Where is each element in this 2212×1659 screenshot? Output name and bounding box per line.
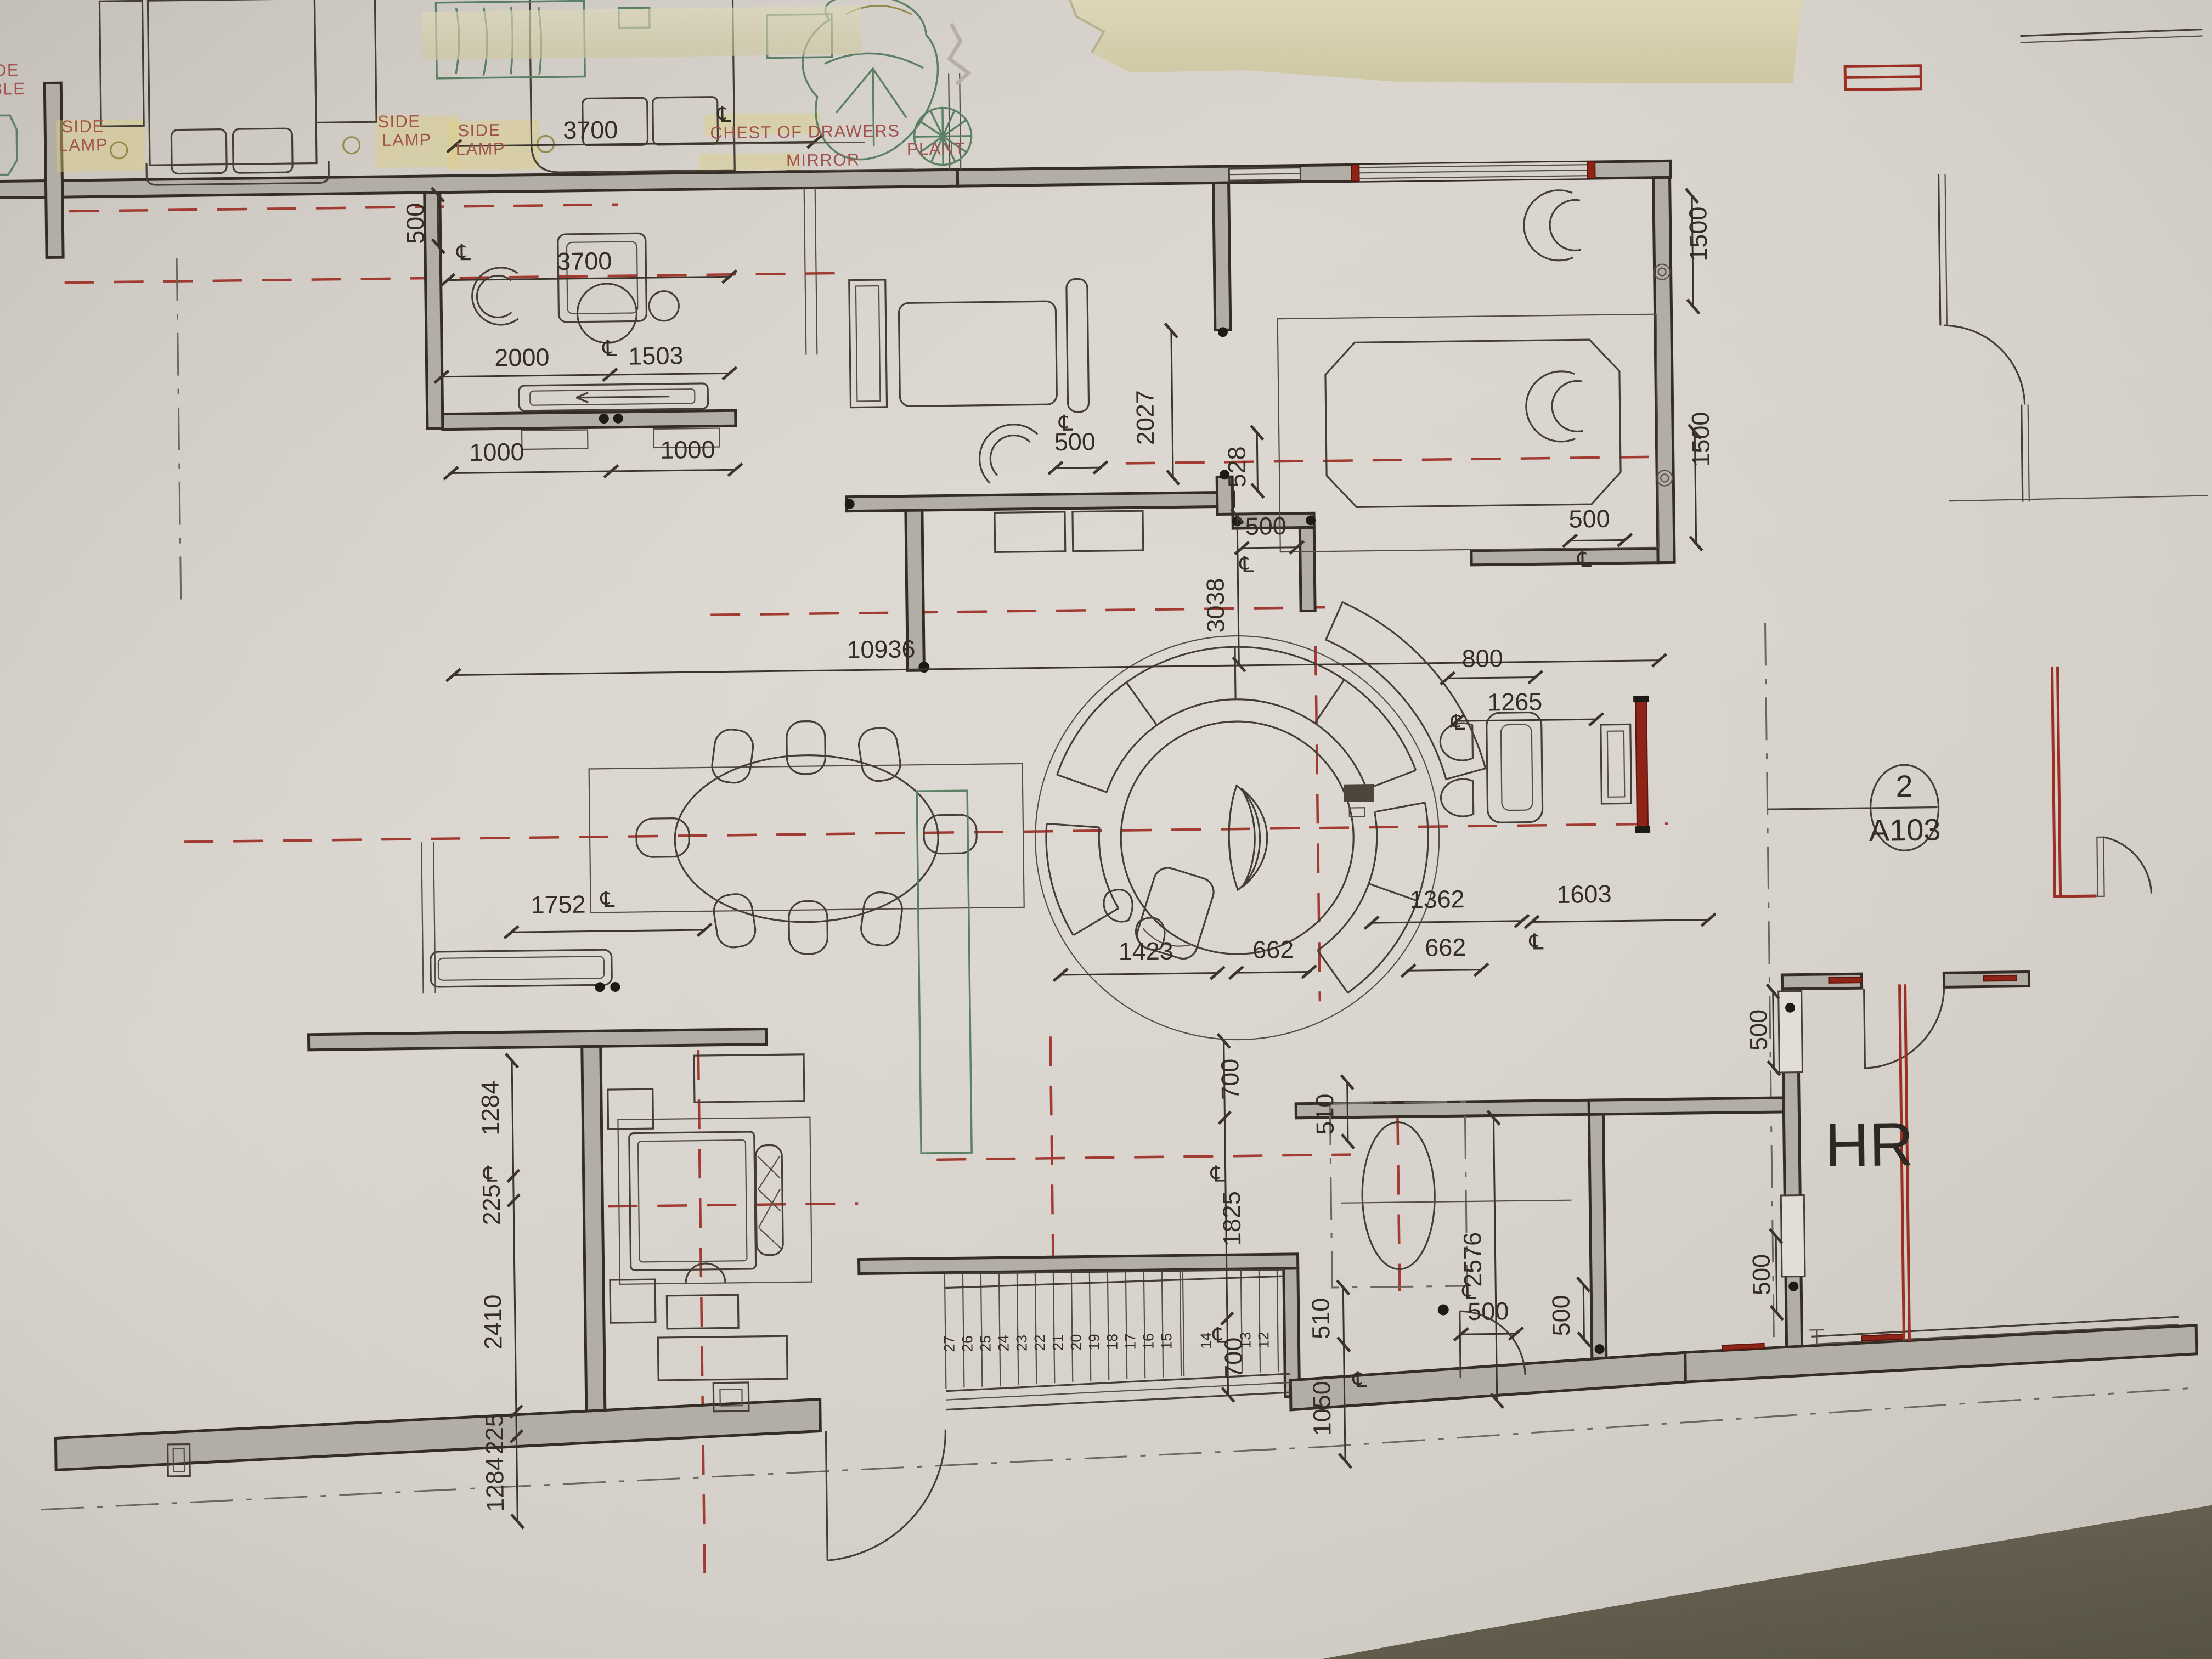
centerline-symbol: ℄ bbox=[456, 240, 471, 266]
dimension-label: 662 bbox=[1252, 935, 1294, 964]
furniture-label: SIDE bbox=[61, 116, 105, 136]
furniture-label: LAMP bbox=[456, 139, 506, 159]
dimension-label: 500 bbox=[1568, 505, 1610, 533]
stair-number: 25 bbox=[977, 1335, 994, 1352]
furniture-label: LAMP bbox=[58, 135, 108, 155]
floorplan-svg: 3700370020001503100010005005002027528500… bbox=[0, 0, 2212, 1659]
dimension-label: 2027 bbox=[1131, 390, 1159, 445]
dimension-label: 500 bbox=[1547, 1295, 1575, 1336]
dimension-label: 225 bbox=[477, 1184, 506, 1226]
dimension-label: 1825 bbox=[1217, 1191, 1246, 1246]
centerline-symbol: ℄ bbox=[716, 102, 732, 127]
dimension-label: 510 bbox=[1311, 1093, 1339, 1135]
centerline-symbol: ℄ bbox=[1451, 710, 1466, 735]
stair-number: 12 bbox=[1255, 1331, 1272, 1348]
dimension-label: 528 bbox=[1222, 446, 1251, 488]
stair-number: 17 bbox=[1122, 1333, 1138, 1350]
centerline-symbol: ℄ bbox=[1210, 1161, 1226, 1187]
floorplan-photo: 3700370020001503100010005005002027528500… bbox=[0, 0, 2212, 1659]
callout-text: A103 bbox=[1869, 812, 1941, 848]
furniture-label: MIRROR bbox=[786, 150, 860, 170]
furniture-label: SIDE bbox=[377, 111, 421, 131]
furniture-label: PLANT bbox=[907, 139, 966, 159]
centerline-symbol: ℄ bbox=[602, 336, 617, 362]
centerline-symbol: ℄ bbox=[1212, 1323, 1227, 1348]
stair-number: 15 bbox=[1158, 1333, 1175, 1350]
red-wall-element bbox=[1635, 700, 1648, 827]
dimension-label: 1500 bbox=[1684, 206, 1712, 262]
stair-number: 24 bbox=[995, 1335, 1012, 1351]
furniture-label: DE bbox=[0, 60, 19, 80]
stair-number: 19 bbox=[1086, 1334, 1102, 1350]
stair-number: 23 bbox=[1013, 1335, 1030, 1351]
dimension-label: 500 bbox=[1744, 1009, 1773, 1051]
dimension-label: 662 bbox=[1425, 933, 1466, 962]
dimension-label: 1050 bbox=[1307, 1381, 1336, 1436]
stair-number: 20 bbox=[1068, 1334, 1084, 1351]
stair-number: 26 bbox=[959, 1335, 975, 1352]
dimension-label: 1284 bbox=[476, 1080, 505, 1136]
dimension-label: 1423 bbox=[1118, 937, 1173, 966]
dimension-label: 1000 bbox=[660, 436, 715, 464]
centerline-symbol: ℄ bbox=[1352, 1367, 1367, 1392]
dimension-label: 500 bbox=[401, 202, 430, 244]
centerline-symbol: ℄ bbox=[600, 887, 615, 912]
centerline-symbol: ℄ bbox=[1528, 929, 1544, 955]
centerline-symbol: ℄ bbox=[1239, 552, 1254, 578]
dimension-label: 10936 bbox=[847, 635, 916, 664]
stair-number: 16 bbox=[1140, 1333, 1156, 1350]
masking-tape-left bbox=[422, 5, 861, 60]
dimension-label: 1284 bbox=[481, 1457, 509, 1512]
centerline-symbol: ℄ bbox=[482, 1162, 498, 1187]
tv-icon bbox=[1344, 784, 1374, 802]
masking-tape-right bbox=[1069, 0, 1802, 83]
dimension-label: 1503 bbox=[628, 341, 684, 370]
dimension-label: 225 bbox=[480, 1413, 509, 1455]
centerline-symbol: ℄ bbox=[1462, 1279, 1477, 1305]
dimension-label: 1000 bbox=[469, 438, 524, 466]
dimension-label: 1362 bbox=[1409, 885, 1465, 913]
dimension-label: 1500 bbox=[1686, 411, 1715, 467]
window-red-mark bbox=[1351, 165, 1359, 181]
furniture-label: CHEST OF DRAWERS bbox=[710, 121, 900, 142]
centerline-symbol: ℄ bbox=[1058, 411, 1074, 436]
dimension-label: 3700 bbox=[563, 116, 618, 144]
dimension-label: 1603 bbox=[1556, 880, 1612, 909]
dimension-label: 500 bbox=[1245, 512, 1286, 540]
room-label: HR bbox=[1824, 1110, 1914, 1180]
dimension-label: 3700 bbox=[557, 247, 612, 275]
furniture-label: BLE bbox=[0, 79, 26, 99]
dimension-label: 510 bbox=[1306, 1297, 1335, 1339]
stair-number: 22 bbox=[1031, 1334, 1048, 1351]
callout-text: 2 bbox=[1895, 769, 1913, 803]
dimension-label: 1265 bbox=[1487, 687, 1543, 716]
furniture-label: SIDE bbox=[458, 120, 501, 140]
stair-number: 13 bbox=[1237, 1332, 1254, 1348]
furniture-label: LAMP bbox=[382, 130, 432, 150]
stair-number: 21 bbox=[1049, 1334, 1066, 1351]
dimension-label: 1752 bbox=[531, 890, 586, 919]
dimension-label: 3038 bbox=[1201, 578, 1229, 633]
stair-number: 14 bbox=[1198, 1333, 1214, 1349]
dimension-label: 2410 bbox=[478, 1294, 507, 1350]
window-red-mark bbox=[1587, 162, 1595, 178]
stair-number: 18 bbox=[1104, 1334, 1120, 1350]
centerline-symbol: ℄ bbox=[1577, 547, 1592, 572]
dimension-label: 700 bbox=[1216, 1058, 1244, 1100]
dimension-label: 2000 bbox=[494, 343, 550, 371]
stair-number: 27 bbox=[941, 1335, 957, 1352]
dimension-label: 800 bbox=[1462, 644, 1503, 673]
dimension-label: 500 bbox=[1747, 1254, 1776, 1296]
